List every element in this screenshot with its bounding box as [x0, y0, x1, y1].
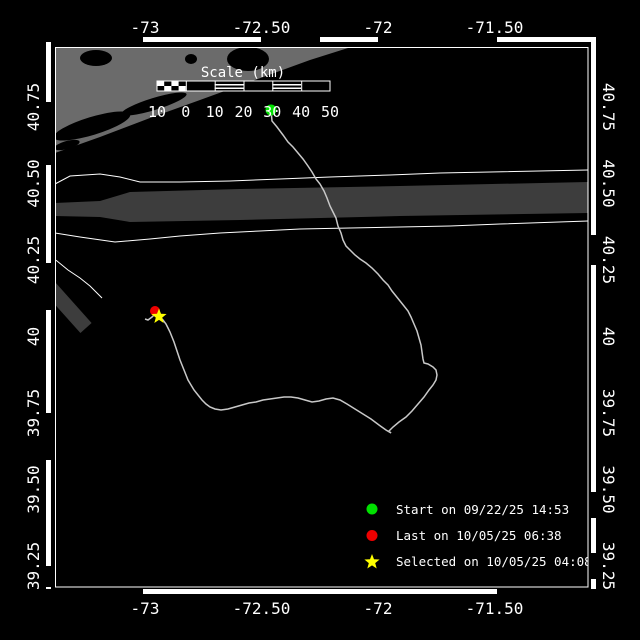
- map-plot-area[interactable]: Scale (km) 10 0 10 20 30 40: [44, 47, 592, 587]
- legend-selected-label: Selected on 10/05/25 04:08: [396, 554, 592, 569]
- lat-left-label-5: 39.50: [24, 465, 43, 513]
- scale-label-50: 50: [321, 103, 339, 121]
- lon-bottom-label-3: -71.50: [466, 599, 524, 618]
- lat-right-label-5: 39.50: [599, 465, 618, 513]
- lon-bottom-label-0: -73: [131, 599, 160, 618]
- lat-left-label-1: 40.50: [24, 159, 43, 207]
- lon-top-label-2: -72: [364, 18, 393, 37]
- legend-last-dot: [367, 530, 378, 541]
- legend: Start on 09/22/25 14:53 Last on 10/05/25…: [364, 502, 591, 569]
- scale-label-0: 0: [181, 103, 190, 121]
- lat-right-label-1: 40.50: [599, 159, 618, 207]
- lat-left-label-3: 40: [24, 327, 43, 346]
- lon-top-label-3: -71.50: [466, 18, 524, 37]
- lat-left-label-0: 40.75: [24, 83, 43, 131]
- lat-right-label-6: 39.25: [599, 542, 618, 590]
- bay-west: [80, 50, 112, 66]
- legend-last-label: Last on 10/05/25 06:38: [396, 528, 562, 543]
- lat-right-label-0: 40.75: [599, 83, 618, 131]
- lat-left-label-2: 40.25: [24, 236, 43, 284]
- lat-right-label-3: 40: [599, 327, 618, 346]
- lat-left-label-6: 39.25: [24, 542, 43, 590]
- lat-right-label-4: 39.75: [599, 389, 618, 437]
- scale-label-20: 20: [234, 103, 252, 121]
- legend-start-dot: [367, 504, 378, 515]
- lat-right-label-2: 40.25: [599, 236, 618, 284]
- scale-label-10: 10: [206, 103, 224, 121]
- lat-left-label-4: 39.75: [24, 389, 43, 437]
- lon-top-label-0: -73: [131, 18, 160, 37]
- scale-label-40: 40: [292, 103, 310, 121]
- lon-bottom-label-1: -72.50: [233, 599, 291, 618]
- lon-top-label-1: -72.50: [233, 18, 291, 37]
- scale-bar-title: Scale (km): [201, 65, 285, 81]
- bay-small: [185, 54, 197, 64]
- drifter-track-map: Scale (km) 10 0 10 20 30 40: [0, 0, 640, 640]
- scale-label-30: 30: [263, 103, 281, 121]
- legend-start-label: Start on 09/22/25 14:53: [396, 502, 569, 517]
- lon-bottom-label-2: -72: [364, 599, 393, 618]
- scale-label-10L: 10: [148, 103, 166, 121]
